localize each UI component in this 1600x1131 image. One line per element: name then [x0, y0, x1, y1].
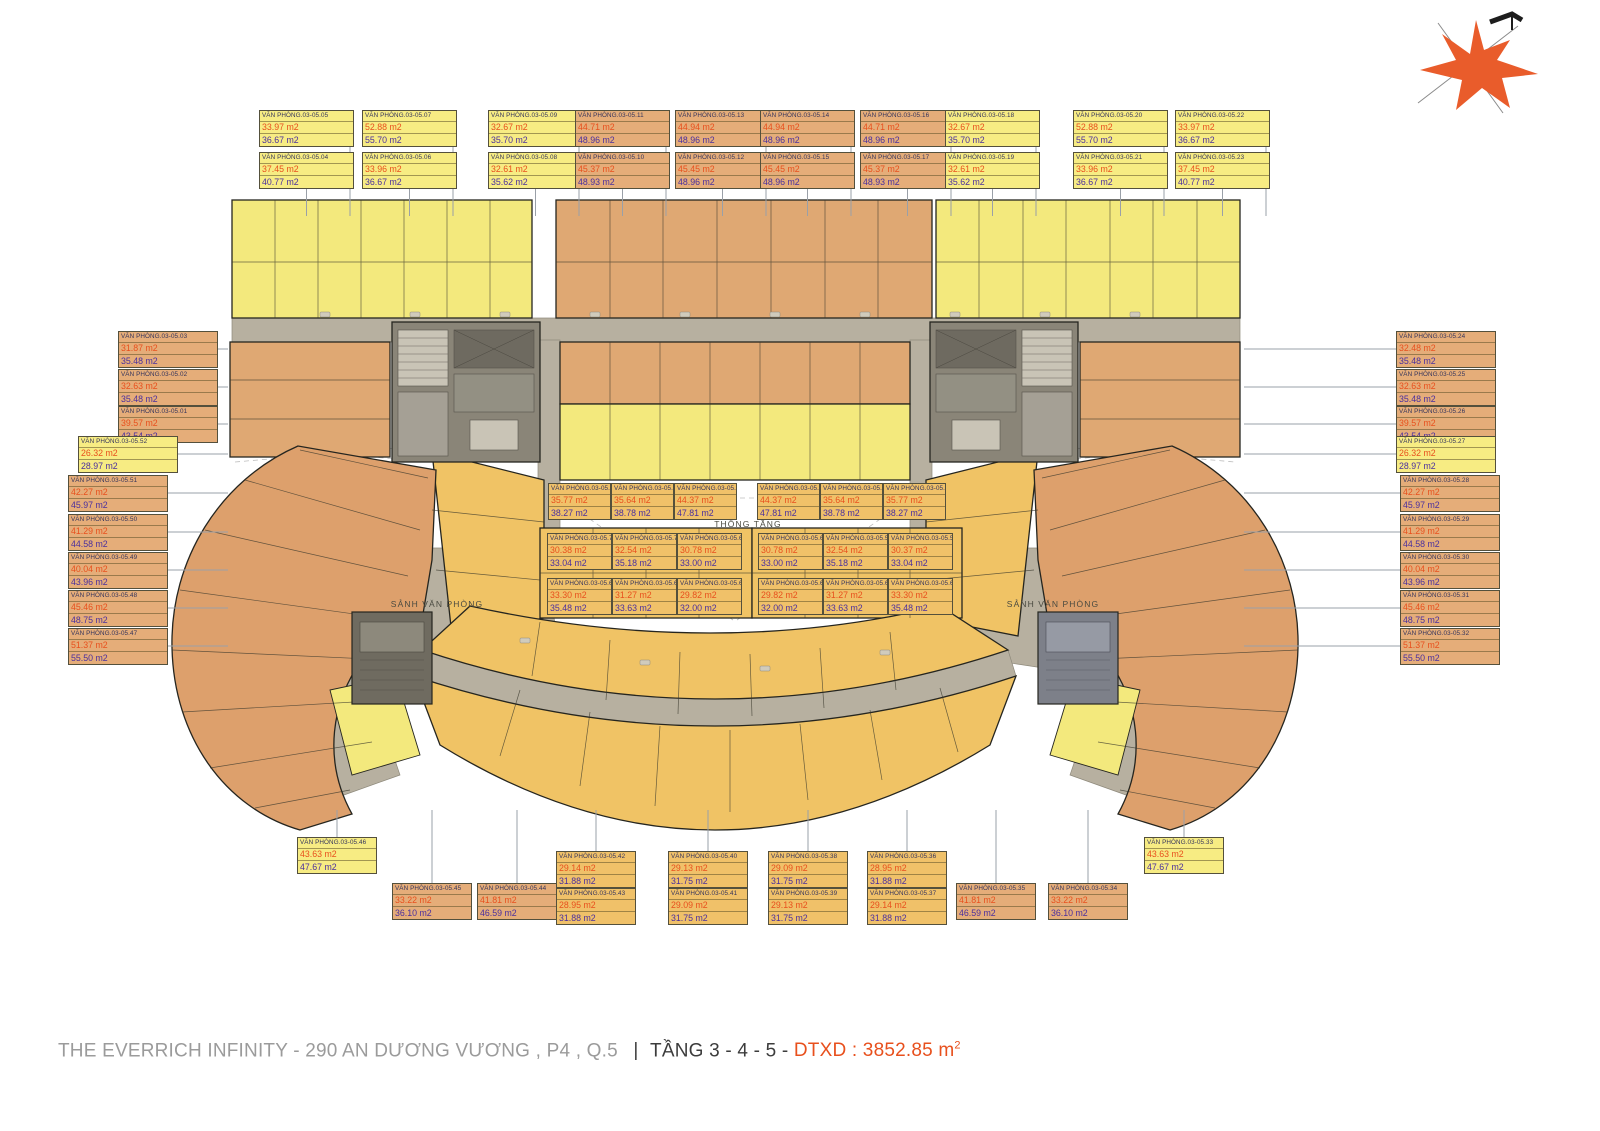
- unit-label-name: VĂN PHÒNG.03-05.59: [889, 534, 952, 545]
- unit-label-name: VĂN PHÒNG.03-05.14: [761, 111, 854, 122]
- unit-label-name: VĂN PHÒNG.03-05.02: [119, 370, 217, 381]
- unit-label: VĂN PHÒNG.03-05.2052.88 m255.70 m2: [1073, 110, 1168, 147]
- unit-label-name: VĂN PHÒNG.03-05.23: [1176, 153, 1269, 164]
- unit-label: VĂN PHÒNG.03-05.5335.64 m238.78 m2: [611, 483, 674, 520]
- unit-label-area1: 32.67 m2: [946, 122, 1039, 134]
- unit-label-area2: 48.93 m2: [576, 176, 669, 188]
- unit-label-name: VĂN PHÒNG.03-05.47: [69, 629, 167, 640]
- unit-label: VĂN PHÒNG.03-05.1245.45 m248.96 m2: [675, 152, 770, 189]
- unit-label-area1: 35.77 m2: [549, 495, 610, 507]
- unit-label-area2: 35.62 m2: [946, 176, 1039, 188]
- unit-label-name: VĂN PHÒNG.03-05.61: [824, 579, 887, 590]
- unit-label-area2: 55.70 m2: [363, 134, 456, 146]
- unit-label-area2: 55.50 m2: [69, 652, 167, 664]
- unit-label-area2: 35.48 m2: [119, 355, 217, 367]
- unit-label-name: VĂN PHÒNG.03-05.33: [1145, 838, 1223, 849]
- unit-label: VĂN PHÒNG.03-05.5444.37 m247.81 m2: [674, 483, 737, 520]
- unit-label: VĂN PHÒNG.03-05.3628.95 m231.88 m2: [867, 851, 947, 888]
- unit-label-area2: 35.70 m2: [946, 134, 1039, 146]
- unit-label: VĂN PHÒNG.03-05.7235.77 m238.27 m2: [548, 483, 611, 520]
- unit-label: VĂN PHÒNG.03-05.2532.63 m235.48 m2: [1396, 369, 1496, 406]
- unit-label-area2: 36.67 m2: [1074, 176, 1167, 188]
- unit-label-area2: 48.75 m2: [69, 614, 167, 626]
- unit-label-name: VĂN PHÒNG.03-05.54: [675, 484, 736, 495]
- unit-label-area2: 33.00 m2: [678, 557, 741, 569]
- unit-label-area1: 40.04 m2: [1401, 564, 1499, 576]
- unit-label: VĂN PHÒNG.03-05.2337.45 m240.77 m2: [1175, 152, 1270, 189]
- unit-label-area2: 55.70 m2: [1074, 134, 1167, 146]
- unit-label: VĂN PHÒNG.03-05.63.6430.78 m233.00 m2: [758, 533, 823, 570]
- unit-label: VĂN PHÒNG.03-05.7030.38 m233.04 m2: [547, 533, 612, 570]
- unit-label-area1: 51.37 m2: [69, 640, 167, 652]
- unit-label-area2: 38.78 m2: [821, 507, 882, 519]
- unit-label-name: VĂN PHÒNG.03-05.43: [557, 889, 635, 900]
- unit-label-area2: 46.59 m2: [957, 907, 1035, 919]
- footer-project: THE EVERRICH INFINITY - 290 AN DƯƠNG VƯƠ…: [58, 1040, 618, 1061]
- unit-label-area2: 36.67 m2: [260, 134, 353, 146]
- unit-label-area2: 44.58 m2: [1401, 538, 1499, 550]
- unit-label-name: VĂN PHÒNG.03-05.36: [868, 852, 946, 863]
- unit-label-area1: 32.48 m2: [1397, 343, 1495, 355]
- unit-label-name: VĂN PHÒNG.03-05.69: [548, 579, 611, 590]
- unit-label-layer: VĂN PHÒNG.03-05.0533.97 m236.67 m2VĂN PH…: [0, 0, 1600, 1131]
- unit-label-name: VĂN PHÒNG.03-05.17: [861, 153, 954, 164]
- unit-label-name: VĂN PHÒNG.03-05.18: [946, 111, 1039, 122]
- unit-label-area1: 45.45 m2: [676, 164, 769, 176]
- unit-label-name: VĂN PHÒNG.03-05.28: [1401, 476, 1499, 487]
- unit-label-area1: 30.78 m2: [678, 545, 741, 557]
- unit-label-name: VĂN PHÒNG.03-05.32: [1401, 629, 1499, 640]
- unit-label-name: VĂN PHÒNG.03-05.31: [1401, 591, 1499, 602]
- unit-label-area1: 45.37 m2: [861, 164, 954, 176]
- unit-label-area1: 32.54 m2: [824, 545, 887, 557]
- unit-label-area1: 37.45 m2: [260, 164, 353, 176]
- unit-label-area2: 40.77 m2: [260, 176, 353, 188]
- unit-label: VĂN PHÒNG.03-05.4845.46 m248.75 m2: [68, 590, 168, 627]
- unit-label-name: VĂN PHÒNG.03-05.45: [393, 884, 471, 895]
- unit-label-area2: 33.00 m2: [759, 557, 822, 569]
- unit-label-area2: 35.48 m2: [1397, 393, 1495, 405]
- unit-label-name: VĂN PHÒNG.03-05.58: [824, 534, 887, 545]
- unit-label: VĂN PHÒNG.03-05.4029.13 m231.75 m2: [668, 851, 748, 888]
- unit-label-name: VĂN PHÒNG.03-05.06: [363, 153, 456, 164]
- unit-label-area2: 31.75 m2: [669, 875, 747, 887]
- unit-label: VĂN PHÒNG.03-05.2432.48 m235.48 m2: [1396, 331, 1496, 368]
- unit-label: VĂN PHÒNG.03-05.4441.81 m246.59 m2: [477, 883, 557, 920]
- unit-label-area2: 31.88 m2: [868, 875, 946, 887]
- unit-label-area1: 32.54 m2: [613, 545, 676, 557]
- unit-label-name: VĂN PHÒNG.03-05.63.64: [759, 534, 822, 545]
- unit-label-area1: 29.14 m2: [868, 900, 946, 912]
- unit-label-area2: 48.96 m2: [676, 176, 769, 188]
- unit-label-area1: 44.37 m2: [675, 495, 736, 507]
- unit-label-area1: 41.29 m2: [69, 526, 167, 538]
- unit-label-name: VĂN PHÒNG.03-05.07: [363, 111, 456, 122]
- unit-label-area2: 35.70 m2: [489, 134, 582, 146]
- unit-label-name: VĂN PHÒNG.03-05.05: [260, 111, 353, 122]
- unit-label: VĂN PHÒNG.03-05.3145.46 m248.75 m2: [1400, 590, 1500, 627]
- unit-label-area2: 31.75 m2: [669, 912, 747, 924]
- unit-label-name: VĂN PHÒNG.03-05.50: [69, 515, 167, 526]
- unit-label-area2: 35.48 m2: [119, 393, 217, 405]
- unit-label-area2: 33.63 m2: [824, 602, 887, 614]
- unit-label: VĂN PHÒNG.03-05.2133.96 m236.67 m2: [1073, 152, 1168, 189]
- unit-label: VĂN PHÒNG.03-05.2941.29 m244.58 m2: [1400, 514, 1500, 551]
- unit-label-name: VĂN PHÒNG.03-05.19: [946, 153, 1039, 164]
- unit-label-area1: 33.97 m2: [260, 122, 353, 134]
- unit-label-area2: 31.88 m2: [557, 875, 635, 887]
- unit-label-name: VĂN PHÒNG.03-05.72: [549, 484, 610, 495]
- unit-label-area1: 43.63 m2: [298, 849, 376, 861]
- unit-label-area2: 35.18 m2: [613, 557, 676, 569]
- unit-label-area1: 35.64 m2: [612, 495, 673, 507]
- floor-plan-page: THÔNG TẦNGSẢNH VĂN PHÒNGSẢNH VĂN PHÒNG V…: [0, 0, 1600, 1131]
- unit-label-area2: 43.96 m2: [1401, 576, 1499, 588]
- unit-label-area1: 32.61 m2: [946, 164, 1039, 176]
- unit-label-area1: 31.27 m2: [824, 590, 887, 602]
- unit-label-area1: 29.09 m2: [669, 900, 747, 912]
- unit-label-name: VĂN PHÒNG.03-05.62: [759, 579, 822, 590]
- unit-label: VĂN PHÒNG.03-05.0533.97 m236.67 m2: [259, 110, 354, 147]
- unit-label-name: VĂN PHÒNG.03-05.34: [1049, 884, 1127, 895]
- unit-label-area2: 47.81 m2: [758, 507, 819, 519]
- unit-label-area2: 33.04 m2: [889, 557, 952, 569]
- unit-label: VĂN PHÒNG.03-05.1832.67 m235.70 m2: [945, 110, 1040, 147]
- unit-label-name: VĂN PHÒNG.03-05.60: [889, 579, 952, 590]
- unit-label-name: VĂN PHÒNG.03-05.57: [884, 484, 945, 495]
- unit-label-area1: 29.82 m2: [678, 590, 741, 602]
- unit-label-name: VĂN PHÒNG.03-05.20: [1074, 111, 1167, 122]
- unit-label-area2: 48.96 m2: [576, 134, 669, 146]
- unit-label: VĂN PHÒNG.03-05.6229.82 m232.00 m2: [758, 578, 823, 615]
- unit-label: VĂN PHÒNG.03-05.3829.09 m231.75 m2: [768, 851, 848, 888]
- unit-label-name: VĂN PHÒNG.03-05.16: [861, 111, 954, 122]
- unit-label: VĂN PHÒNG.03-05.2842.27 m245.97 m2: [1400, 475, 1500, 512]
- unit-label-name: VĂN PHÒNG.03-05.21: [1074, 153, 1167, 164]
- unit-label: VĂN PHÒNG.03-05.2233.97 m236.67 m2: [1175, 110, 1270, 147]
- unit-label: VĂN PHÒNG.03-05.3929.13 m231.75 m2: [768, 888, 848, 925]
- unit-label: VĂN PHÒNG.03-05.5635.64 m238.78 m2: [820, 483, 883, 520]
- unit-label-area1: 33.30 m2: [889, 590, 952, 602]
- unit-label: VĂN PHÒNG.03-05.3729.14 m231.88 m2: [867, 888, 947, 925]
- unit-label: VĂN PHÒNG.03-05.5226.32 m228.97 m2: [78, 436, 178, 473]
- unit-label-name: VĂN PHÒNG.03-05.65.66: [678, 534, 741, 545]
- unit-label-area2: 48.96 m2: [861, 134, 954, 146]
- unit-label-area2: 28.97 m2: [1397, 460, 1495, 472]
- unit-label-name: VĂN PHÒNG.03-05.55: [758, 484, 819, 495]
- unit-label: VĂN PHÒNG.03-05.65.6630.78 m233.00 m2: [677, 533, 742, 570]
- unit-label-area1: 33.96 m2: [1074, 164, 1167, 176]
- unit-label-area2: 44.58 m2: [69, 538, 167, 550]
- unit-label: VĂN PHÒNG.03-05.2726.32 m228.97 m2: [1396, 436, 1496, 473]
- unit-label-area2: 48.96 m2: [761, 176, 854, 188]
- unit-label-name: VĂN PHÒNG.03-05.03: [119, 332, 217, 343]
- unit-label-name: VĂN PHÒNG.03-05.04: [260, 153, 353, 164]
- unit-label-area2: 31.75 m2: [769, 875, 847, 887]
- unit-label-area1: 45.46 m2: [69, 602, 167, 614]
- unit-label: VĂN PHÒNG.03-05.4129.09 m231.75 m2: [668, 888, 748, 925]
- unit-label-area1: 32.61 m2: [489, 164, 582, 176]
- unit-label-area1: 40.04 m2: [69, 564, 167, 576]
- unit-label-area1: 35.77 m2: [884, 495, 945, 507]
- unit-label-name: VĂN PHÒNG.03-05.42: [557, 852, 635, 863]
- unit-label: VĂN PHÒNG.03-05.3541.81 m246.59 m2: [956, 883, 1036, 920]
- unit-label-name: VĂN PHÒNG.03-05.40: [669, 852, 747, 863]
- unit-label: VĂN PHÒNG.03-05.4328.95 m231.88 m2: [556, 888, 636, 925]
- unit-label-area1: 44.94 m2: [676, 122, 769, 134]
- unit-label-area2: 48.96 m2: [676, 134, 769, 146]
- unit-label-name: VĂN PHÒNG.03-05.25: [1397, 370, 1495, 381]
- unit-label-area2: 31.88 m2: [868, 912, 946, 924]
- unit-label-area2: 36.67 m2: [363, 176, 456, 188]
- unit-label-name: VĂN PHÒNG.03-05.24: [1397, 332, 1495, 343]
- unit-label-area1: 28.95 m2: [557, 900, 635, 912]
- unit-label-area1: 39.57 m2: [119, 418, 217, 430]
- unit-label-area2: 36.10 m2: [393, 907, 471, 919]
- unit-label: VĂN PHÒNG.03-05.5735.77 m238.27 m2: [883, 483, 946, 520]
- unit-label-area1: 42.27 m2: [1401, 487, 1499, 499]
- unit-label: VĂN PHÒNG.03-05.3343.63 m247.67 m2: [1144, 837, 1224, 874]
- unit-label-area1: 26.32 m2: [79, 448, 177, 460]
- unit-label-area1: 30.37 m2: [889, 545, 952, 557]
- unit-label-name: VĂN PHÒNG.03-05.11: [576, 111, 669, 122]
- unit-label-name: VĂN PHÒNG.03-05.70: [548, 534, 611, 545]
- unit-label-area2: 35.48 m2: [889, 602, 952, 614]
- unit-label-area1: 52.88 m2: [1074, 122, 1167, 134]
- unit-label-area2: 47.67 m2: [1145, 861, 1223, 873]
- unit-label: VĂN PHÒNG.03-05.6933.30 m235.48 m2: [547, 578, 612, 615]
- unit-label: VĂN PHÒNG.03-05.1745.37 m248.93 m2: [860, 152, 955, 189]
- unit-label-area1: 39.57 m2: [1397, 418, 1495, 430]
- unit-label-area1: 41.81 m2: [478, 895, 556, 907]
- unit-label-area2: 31.75 m2: [769, 912, 847, 924]
- unit-label-area2: 38.27 m2: [884, 507, 945, 519]
- unit-label-area1: 26.32 m2: [1397, 448, 1495, 460]
- footer-floor: TẦNG 3 - 4 - 5 -: [650, 1040, 794, 1061]
- unit-label: VĂN PHÒNG.03-05.1045.37 m248.93 m2: [575, 152, 670, 189]
- unit-label: VĂN PHÒNG.03-05.0932.67 m235.70 m2: [488, 110, 583, 147]
- unit-label-area2: 35.48 m2: [548, 602, 611, 614]
- unit-label-area1: 43.63 m2: [1145, 849, 1223, 861]
- unit-label-name: VĂN PHÒNG.03-05.71: [613, 534, 676, 545]
- unit-label-area1: 30.38 m2: [548, 545, 611, 557]
- unit-label-area1: 45.37 m2: [576, 164, 669, 176]
- unit-label-area1: 44.71 m2: [576, 122, 669, 134]
- unit-label-area2: 33.04 m2: [548, 557, 611, 569]
- unit-label: VĂN PHÒNG.03-05.5142.27 m245.97 m2: [68, 475, 168, 512]
- unit-label-area1: 42.27 m2: [69, 487, 167, 499]
- unit-label-name: VĂN PHÒNG.03-05.35: [957, 884, 1035, 895]
- unit-label-area2: 35.62 m2: [489, 176, 582, 188]
- unit-label-name: VĂN PHÒNG.03-05.15: [761, 153, 854, 164]
- unit-label-name: VĂN PHÒNG.03-05.09: [489, 111, 582, 122]
- unit-label-area2: 33.63 m2: [613, 602, 676, 614]
- unit-label-name: VĂN PHÒNG.03-05.39: [769, 889, 847, 900]
- unit-label: VĂN PHÒNG.03-05.1932.61 m235.62 m2: [945, 152, 1040, 189]
- unit-label-name: VĂN PHÒNG.03-05.53: [612, 484, 673, 495]
- unit-label-area1: 31.87 m2: [119, 343, 217, 355]
- unit-label-area2: 40.77 m2: [1176, 176, 1269, 188]
- unit-label: VĂN PHÒNG.03-05.6729.82 m232.00 m2: [677, 578, 742, 615]
- unit-label-name: VĂN PHÒNG.03-05.68: [613, 579, 676, 590]
- unit-label: VĂN PHÒNG.03-05.4643.63 m247.67 m2: [297, 837, 377, 874]
- unit-label-area1: 29.14 m2: [557, 863, 635, 875]
- unit-label: VĂN PHÒNG.03-05.5832.54 m235.18 m2: [823, 533, 888, 570]
- footer-title-bar: THE EVERRICH INFINITY - 290 AN DƯƠNG VƯƠ…: [58, 1040, 961, 1062]
- unit-label-area1: 33.22 m2: [393, 895, 471, 907]
- unit-label-area2: 45.97 m2: [69, 499, 167, 511]
- unit-label-area1: 44.94 m2: [761, 122, 854, 134]
- unit-label: VĂN PHÒNG.03-05.1644.71 m248.96 m2: [860, 110, 955, 147]
- unit-label-area1: 33.96 m2: [363, 164, 456, 176]
- unit-label-area2: 46.59 m2: [478, 907, 556, 919]
- unit-label-area1: 31.27 m2: [613, 590, 676, 602]
- unit-label-area1: 29.13 m2: [769, 900, 847, 912]
- unit-label-area2: 35.48 m2: [1397, 355, 1495, 367]
- unit-label: VĂN PHÒNG.03-05.1545.45 m248.96 m2: [760, 152, 855, 189]
- unit-label: VĂN PHÒNG.03-05.0832.61 m235.62 m2: [488, 152, 583, 189]
- unit-label: VĂN PHÒNG.03-05.5930.37 m233.04 m2: [888, 533, 953, 570]
- unit-label-area2: 36.10 m2: [1049, 907, 1127, 919]
- unit-label-area2: 28.97 m2: [79, 460, 177, 472]
- unit-label-area2: 32.00 m2: [759, 602, 822, 614]
- unit-label-area1: 33.30 m2: [548, 590, 611, 602]
- unit-label-area1: 37.45 m2: [1176, 164, 1269, 176]
- unit-label: VĂN PHÒNG.03-05.4751.37 m255.50 m2: [68, 628, 168, 665]
- unit-label: VĂN PHÒNG.03-05.6131.27 m233.63 m2: [823, 578, 888, 615]
- unit-label-name: VĂN PHÒNG.03-05.38: [769, 852, 847, 863]
- unit-label-area1: 45.46 m2: [1401, 602, 1499, 614]
- unit-label: VĂN PHÒNG.03-05.0232.63 m235.48 m2: [118, 369, 218, 406]
- unit-label-name: VĂN PHÒNG.03-05.49: [69, 553, 167, 564]
- unit-label-area2: 55.50 m2: [1401, 652, 1499, 664]
- unit-label-name: VĂN PHÒNG.03-05.37: [868, 889, 946, 900]
- unit-label: VĂN PHÒNG.03-05.4229.14 m231.88 m2: [556, 851, 636, 888]
- unit-label-name: VĂN PHÒNG.03-05.41: [669, 889, 747, 900]
- unit-label-area2: 48.75 m2: [1401, 614, 1499, 626]
- unit-label: VĂN PHÒNG.03-05.5041.29 m244.58 m2: [68, 514, 168, 551]
- unit-label: VĂN PHÒNG.03-05.0633.96 m236.67 m2: [362, 152, 457, 189]
- unit-label-area2: 38.78 m2: [612, 507, 673, 519]
- unit-label-name: VĂN PHÒNG.03-05.26: [1397, 407, 1495, 418]
- unit-label-name: VĂN PHÒNG.03-05.56: [821, 484, 882, 495]
- unit-label: VĂN PHÒNG.03-05.7132.54 m235.18 m2: [612, 533, 677, 570]
- unit-label-area1: 33.22 m2: [1049, 895, 1127, 907]
- unit-label-area1: 45.45 m2: [761, 164, 854, 176]
- unit-label: VĂN PHÒNG.03-05.1444.94 m248.96 m2: [760, 110, 855, 147]
- unit-label: VĂN PHÒNG.03-05.0752.88 m255.70 m2: [362, 110, 457, 147]
- footer-dtxd: DTXD : 3852.85 m2: [794, 1040, 961, 1061]
- unit-label-area2: 45.97 m2: [1401, 499, 1499, 511]
- unit-label-name: VĂN PHÒNG.03-05.29: [1401, 515, 1499, 526]
- unit-label-area2: 38.27 m2: [549, 507, 610, 519]
- unit-label-area2: 36.67 m2: [1176, 134, 1269, 146]
- unit-label-area1: 35.64 m2: [821, 495, 882, 507]
- unit-label-area1: 41.29 m2: [1401, 526, 1499, 538]
- unit-label-area1: 44.37 m2: [758, 495, 819, 507]
- unit-label: VĂN PHÒNG.03-05.1144.71 m248.96 m2: [575, 110, 670, 147]
- unit-label-name: VĂN PHÒNG.03-05.48: [69, 591, 167, 602]
- unit-label-area1: 29.09 m2: [769, 863, 847, 875]
- unit-label: VĂN PHÒNG.03-05.5544.37 m247.81 m2: [757, 483, 820, 520]
- unit-label-area2: 43.96 m2: [69, 576, 167, 588]
- unit-label-name: VĂN PHÒNG.03-05.22: [1176, 111, 1269, 122]
- unit-label: VĂN PHÒNG.03-05.3433.22 m236.10 m2: [1048, 883, 1128, 920]
- unit-label-area1: 32.63 m2: [119, 381, 217, 393]
- unit-label-area1: 41.81 m2: [957, 895, 1035, 907]
- unit-label-name: VĂN PHÒNG.03-05.13: [676, 111, 769, 122]
- unit-label-area1: 44.71 m2: [861, 122, 954, 134]
- unit-label: VĂN PHÒNG.03-05.4533.22 m236.10 m2: [392, 883, 472, 920]
- unit-label-name: VĂN PHÒNG.03-05.30: [1401, 553, 1499, 564]
- unit-label: VĂN PHÒNG.03-05.4940.04 m243.96 m2: [68, 552, 168, 589]
- unit-label: VĂN PHÒNG.03-05.3251.37 m255.50 m2: [1400, 628, 1500, 665]
- unit-label-area1: 29.13 m2: [669, 863, 747, 875]
- unit-label-area1: 32.63 m2: [1397, 381, 1495, 393]
- unit-label-name: VĂN PHÒNG.03-05.46: [298, 838, 376, 849]
- footer-separator: |: [633, 1040, 638, 1061]
- unit-label-area1: 32.67 m2: [489, 122, 582, 134]
- unit-label-area1: 52.88 m2: [363, 122, 456, 134]
- unit-label-name: VĂN PHÒNG.03-05.51: [69, 476, 167, 487]
- unit-label: VĂN PHÒNG.03-05.0331.87 m235.48 m2: [118, 331, 218, 368]
- unit-label-area2: 47.67 m2: [298, 861, 376, 873]
- unit-label-name: VĂN PHÒNG.03-05.27: [1397, 437, 1495, 448]
- unit-label-area2: 47.81 m2: [675, 507, 736, 519]
- unit-label-name: VĂN PHÒNG.03-05.01: [119, 407, 217, 418]
- unit-label: VĂN PHÒNG.03-05.1344.94 m248.96 m2: [675, 110, 770, 147]
- unit-label-name: VĂN PHÒNG.03-05.10: [576, 153, 669, 164]
- unit-label: VĂN PHÒNG.03-05.6831.27 m233.63 m2: [612, 578, 677, 615]
- unit-label-area2: 48.93 m2: [861, 176, 954, 188]
- unit-label-area2: 32.00 m2: [678, 602, 741, 614]
- unit-label-area1: 51.37 m2: [1401, 640, 1499, 652]
- unit-label-area1: 28.95 m2: [868, 863, 946, 875]
- unit-label-area1: 33.97 m2: [1176, 122, 1269, 134]
- unit-label: VĂN PHÒNG.03-05.3040.04 m243.96 m2: [1400, 552, 1500, 589]
- unit-label-area2: 48.96 m2: [761, 134, 854, 146]
- unit-label-name: VĂN PHÒNG.03-05.52: [79, 437, 177, 448]
- unit-label: VĂN PHÒNG.03-05.0437.45 m240.77 m2: [259, 152, 354, 189]
- unit-label-name: VĂN PHÒNG.03-05.12: [676, 153, 769, 164]
- unit-label-area1: 30.78 m2: [759, 545, 822, 557]
- unit-label-area2: 31.88 m2: [557, 912, 635, 924]
- unit-label: VĂN PHÒNG.03-05.6033.30 m235.48 m2: [888, 578, 953, 615]
- unit-label-area1: 29.82 m2: [759, 590, 822, 602]
- unit-label-name: VĂN PHÒNG.03-05.67: [678, 579, 741, 590]
- unit-label-name: VĂN PHÒNG.03-05.44: [478, 884, 556, 895]
- unit-label-name: VĂN PHÒNG.03-05.08: [489, 153, 582, 164]
- unit-label-area2: 35.18 m2: [824, 557, 887, 569]
